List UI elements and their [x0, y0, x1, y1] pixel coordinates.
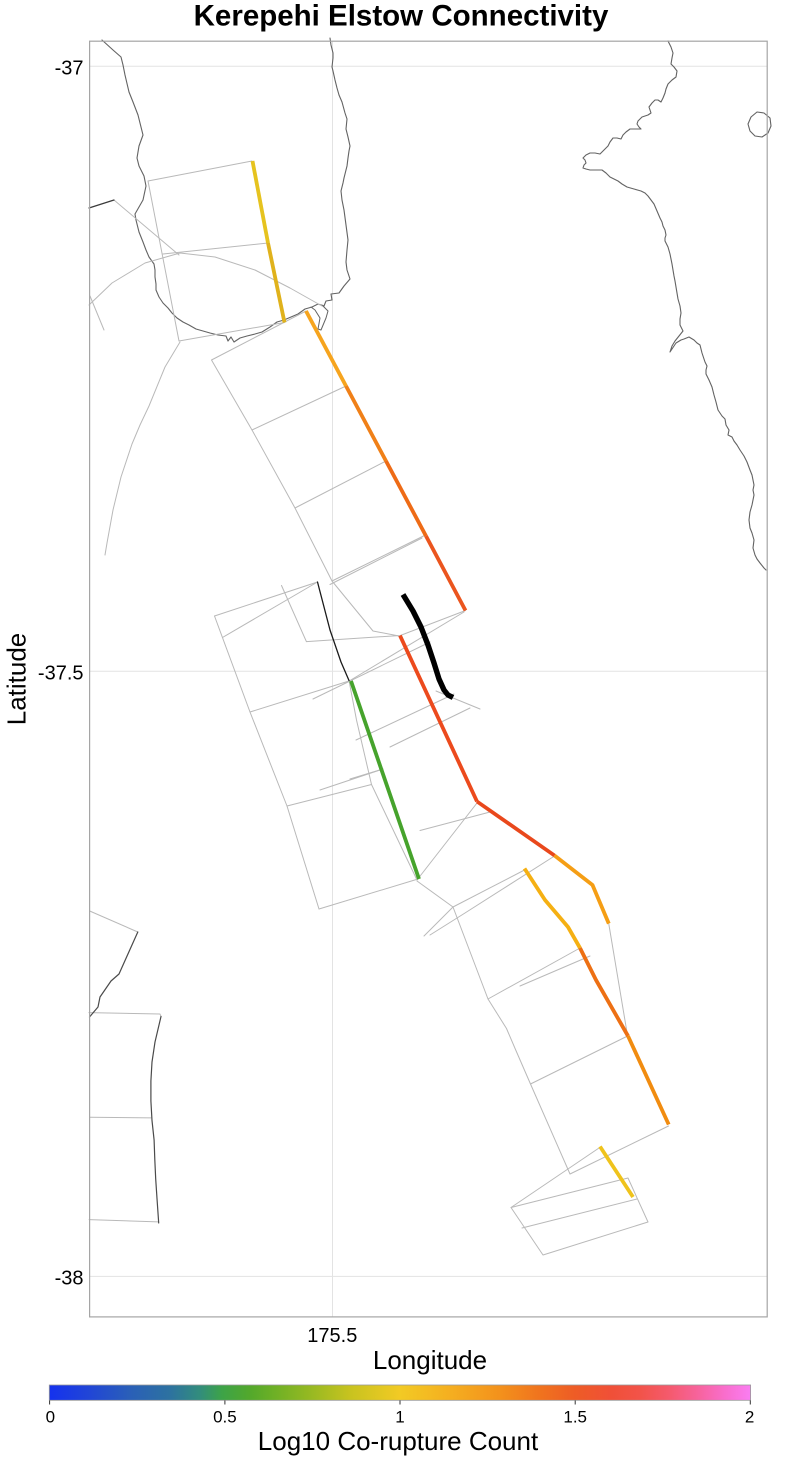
- svg-text:0.5: 0.5: [213, 1408, 237, 1427]
- svg-text:Longitude: Longitude: [373, 1345, 487, 1375]
- svg-text:-37.5: -37.5: [38, 663, 84, 685]
- svg-text:2: 2: [745, 1408, 754, 1427]
- svg-text:Latitude: Latitude: [2, 633, 32, 726]
- svg-text:1.5: 1.5: [563, 1408, 587, 1427]
- svg-text:-38: -38: [55, 1268, 84, 1290]
- svg-text:175.5: 175.5: [307, 1325, 357, 1347]
- svg-text:Log10 Co-rupture Count: Log10 Co-rupture Count: [258, 1426, 539, 1456]
- svg-text:-37: -37: [55, 58, 84, 80]
- svg-text:0: 0: [46, 1408, 55, 1427]
- svg-text:1: 1: [395, 1408, 404, 1427]
- svg-text:Kerepehi Elstow Connectivity: Kerepehi Elstow Connectivity: [194, 0, 609, 33]
